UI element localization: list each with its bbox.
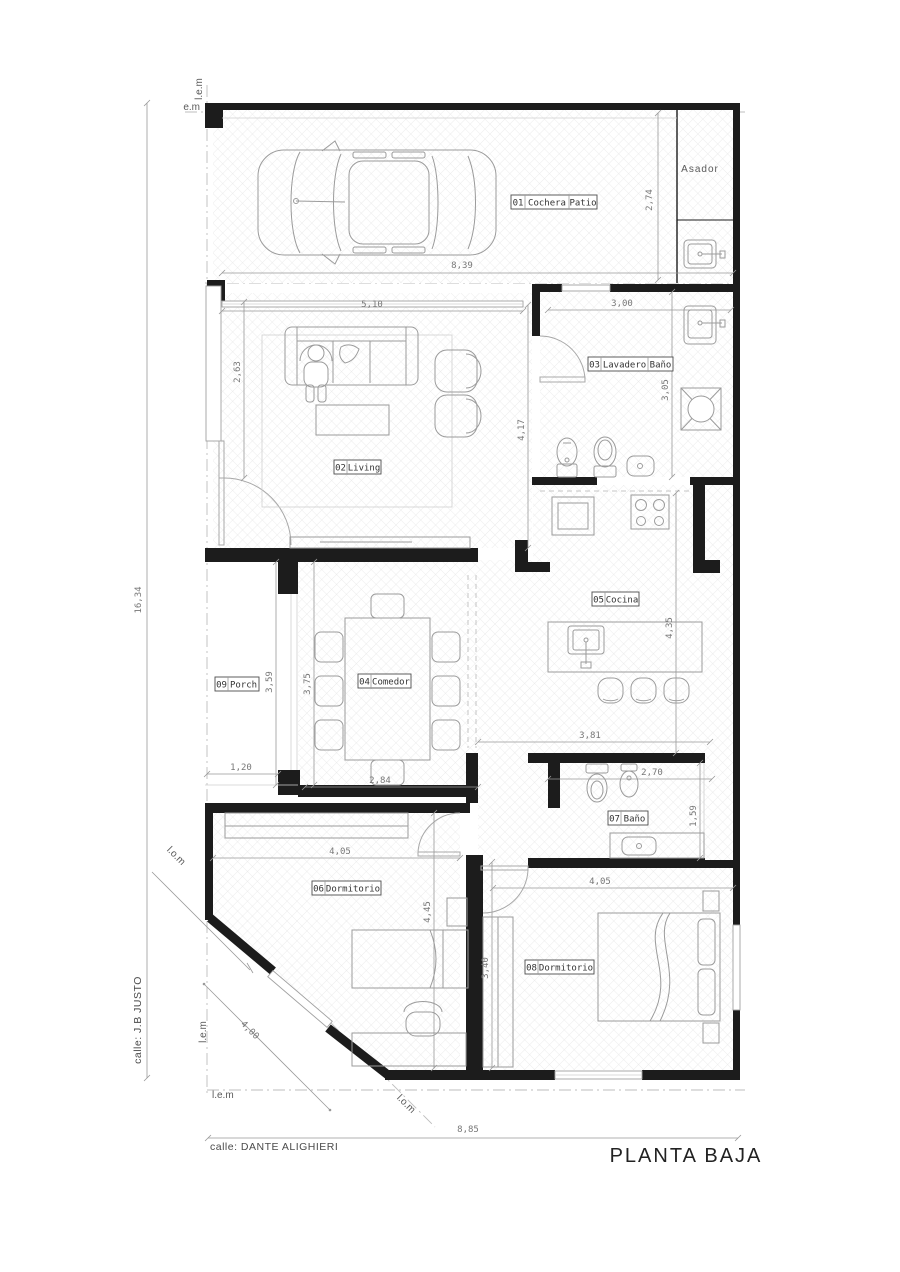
page-title: PLANTA BAJA [610, 1145, 763, 1167]
dim-lot-depth: 16,34 [134, 100, 150, 1081]
dim-porch-width: 1,20 [204, 763, 281, 777]
svg-text:4,05: 4,05 [589, 877, 611, 887]
svg-text:Dormitorio: Dormitorio [539, 964, 593, 974]
svg-text:4,17: 4,17 [517, 419, 527, 441]
svg-text:05: 05 [593, 596, 604, 606]
lom-lower-label: l.o.m [394, 1093, 417, 1116]
lem-bottom-v-label: l.e.m [198, 1021, 209, 1043]
svg-text:3,81: 3,81 [579, 731, 601, 741]
svg-text:1,20: 1,20 [230, 763, 252, 773]
room-label-dormitorio8: 08 Dormitorio [525, 960, 594, 974]
room-label-porch: 09 Porch [215, 677, 259, 691]
svg-text:3,59: 3,59 [265, 671, 275, 693]
room-label-living: 02 Living [334, 460, 381, 474]
svg-text:Baño: Baño [624, 815, 646, 825]
lem-top-label: l.e.m [194, 78, 205, 100]
svg-text:4,05: 4,05 [329, 847, 351, 857]
svg-text:06: 06 [313, 885, 324, 895]
street-left-label: calle: J.B JUSTO [132, 976, 144, 1064]
svg-text:Patio: Patio [569, 199, 596, 209]
svg-text:3,40: 3,40 [481, 957, 491, 979]
svg-text:Lavadero: Lavadero [603, 361, 646, 371]
room-label-cochera-patio: 01 Cochera Patio [511, 195, 597, 209]
svg-text:01: 01 [513, 199, 524, 209]
em-label: e.m [183, 102, 200, 113]
svg-text:4,35: 4,35 [665, 617, 675, 639]
svg-text:09: 09 [216, 681, 227, 691]
svg-text:Living: Living [348, 464, 381, 474]
svg-text:Cocina: Cocina [606, 596, 639, 606]
asador-label: Asador [681, 164, 719, 175]
svg-text:04: 04 [359, 678, 370, 688]
room-label-lavadero-bano: 03 Lavadero Baño [588, 357, 673, 371]
svg-text:Baño: Baño [650, 361, 672, 371]
dim-porch-height: 3,59 [265, 559, 279, 788]
lom-upper-label: l.o.m [164, 845, 187, 868]
floor-plan: 8,39 2,74 5,10 3,00 2,63 3,05 4,17 4,35 … [0, 0, 900, 1272]
svg-text:2,70: 2,70 [641, 768, 663, 778]
svg-text:4,00: 4,00 [238, 1019, 260, 1041]
svg-text:02: 02 [335, 464, 346, 474]
svg-text:3,05: 3,05 [661, 379, 671, 401]
svg-text:03: 03 [589, 361, 600, 371]
svg-text:Dormitorio: Dormitorio [326, 885, 380, 895]
lem-bottom-h-label: l.e.m [212, 1090, 234, 1101]
svg-text:2,74: 2,74 [645, 189, 655, 211]
street-bottom-label: calle: DANTE ALIGHIERI [210, 1141, 338, 1153]
svg-text:3,75: 3,75 [303, 673, 313, 695]
svg-text:Comedor: Comedor [372, 678, 411, 688]
floor-plan-drawing: 8,39 2,74 5,10 3,00 2,63 3,05 4,17 4,35 … [0, 0, 900, 1272]
svg-text:3,00: 3,00 [611, 299, 633, 309]
room-label-cocina: 05 Cocina [592, 592, 639, 606]
svg-text:8,85: 8,85 [457, 1125, 479, 1135]
svg-text:16,34: 16,34 [134, 586, 144, 613]
svg-text:8,39: 8,39 [451, 261, 473, 271]
svg-text:2,84: 2,84 [369, 776, 391, 786]
svg-text:Porch: Porch [230, 681, 257, 691]
svg-text:5,10: 5,10 [361, 300, 383, 310]
room-label-comedor: 04 Comedor [358, 674, 411, 688]
dim-lot-width-bottom: 8,85 [205, 1125, 741, 1141]
svg-text:1,59: 1,59 [689, 805, 699, 827]
svg-text:2,63: 2,63 [233, 361, 243, 383]
svg-text:07: 07 [609, 815, 620, 825]
room-label-dormitorio6: 06 Dormitorio [312, 881, 381, 895]
svg-text:08: 08 [526, 964, 537, 974]
svg-text:Cochera: Cochera [528, 199, 566, 209]
svg-text:4,45: 4,45 [423, 901, 433, 923]
room-label-bano7: 07 Baño [608, 811, 648, 825]
